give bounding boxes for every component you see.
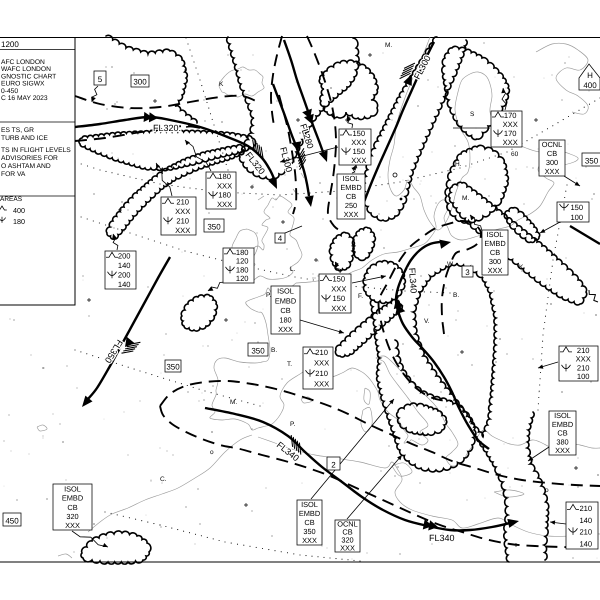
svg-text:200: 200: [118, 251, 131, 260]
svg-text:XXX: XXX: [278, 325, 293, 334]
svg-text:ISOL: ISOL: [343, 174, 360, 183]
svg-text:380: 380: [556, 437, 568, 446]
svg-text:FL350: FL350: [103, 338, 125, 365]
svg-text:140: 140: [579, 539, 592, 548]
svg-text:OCNL: OCNL: [542, 140, 563, 149]
svg-text:GNOSTIC CHART: GNOSTIC CHART: [1, 73, 56, 80]
svg-text:180: 180: [13, 217, 25, 226]
svg-text:100: 100: [570, 213, 583, 222]
svg-text:200: 200: [118, 270, 131, 279]
svg-text:XXX: XXX: [217, 200, 232, 209]
svg-text:XXX: XXX: [351, 138, 366, 147]
svg-text:XXX: XXX: [175, 226, 190, 235]
svg-text:180: 180: [218, 172, 231, 181]
svg-text:T.: T.: [287, 361, 292, 368]
svg-text:ISOL: ISOL: [277, 287, 294, 296]
svg-text:K: K: [219, 81, 224, 88]
svg-text:EMBD: EMBD: [299, 509, 320, 518]
svg-text:100: 100: [577, 372, 590, 381]
svg-text:210: 210: [579, 504, 592, 513]
svg-text:XXX: XXX: [503, 120, 518, 129]
svg-text:XXX: XXX: [344, 210, 359, 219]
svg-text:170: 170: [504, 129, 517, 138]
svg-text:B.: B.: [271, 347, 277, 354]
svg-text:FOR VA: FOR VA: [1, 171, 26, 178]
svg-text:350: 350: [166, 363, 180, 372]
svg-text:TURB AND ICE: TURB AND ICE: [1, 135, 48, 142]
svg-text:S: S: [470, 111, 475, 118]
svg-text:EMBD: EMBD: [484, 239, 505, 248]
svg-text:AFC LONDON: AFC LONDON: [1, 59, 45, 66]
svg-text:FL320.: FL320.: [153, 123, 181, 133]
svg-text:CB: CB: [280, 306, 290, 315]
svg-text:1200: 1200: [1, 40, 19, 49]
svg-text:ISOL: ISOL: [64, 484, 81, 493]
svg-text:XXX: XXX: [302, 536, 317, 545]
svg-text:o: o: [545, 487, 549, 494]
svg-text:XXX: XXX: [217, 182, 232, 191]
svg-text:ISOL: ISOL: [301, 500, 318, 509]
svg-text:FL340: FL340: [429, 533, 455, 543]
svg-text:400: 400: [583, 81, 597, 90]
svg-text:XXX: XXX: [175, 207, 190, 216]
svg-text:XXX: XXX: [545, 167, 560, 176]
svg-text:140: 140: [118, 280, 131, 289]
svg-text:180: 180: [236, 265, 249, 274]
svg-text:FL340: FL340: [407, 267, 419, 293]
svg-text:C 16 MAY 2023: C 16 MAY 2023: [1, 95, 48, 102]
svg-text:320: 320: [66, 512, 78, 521]
svg-text:180: 180: [218, 191, 231, 200]
svg-text:H: H: [587, 71, 593, 80]
svg-text:XXX: XXX: [488, 266, 503, 275]
svg-text:XXX: XXX: [331, 304, 346, 313]
svg-text:XXX: XXX: [340, 543, 355, 552]
svg-text:C.: C.: [160, 476, 167, 483]
svg-text:XXX: XXX: [331, 284, 346, 293]
svg-text:5: 5: [98, 75, 103, 84]
svg-text:ADVISORIES FOR: ADVISORIES FOR: [1, 155, 58, 162]
svg-text:210: 210: [176, 197, 189, 206]
svg-text:XXX: XXX: [65, 521, 80, 530]
svg-text:140: 140: [579, 516, 592, 525]
svg-text:o: o: [210, 449, 214, 456]
svg-text:ES TS, GR: ES TS, GR: [1, 127, 34, 134]
svg-text:150: 150: [352, 129, 365, 138]
svg-text:TS IN FLIGHT LEVELS: TS IN FLIGHT LEVELS: [1, 147, 71, 154]
svg-text:3: 3: [465, 268, 470, 277]
svg-text:V.: V.: [424, 318, 430, 325]
svg-text:CB: CB: [557, 429, 567, 438]
svg-text:180: 180: [236, 248, 249, 257]
svg-text:300: 300: [133, 78, 147, 87]
svg-text:AREAS: AREAS: [0, 196, 23, 203]
svg-text:EMBD: EMBD: [62, 494, 83, 503]
svg-text:300: 300: [546, 158, 558, 167]
svg-text:180: 180: [279, 316, 291, 325]
svg-text:CB: CB: [547, 149, 557, 158]
svg-text:210: 210: [315, 369, 328, 378]
svg-text:CB: CB: [304, 518, 314, 527]
svg-text:XXX: XXX: [503, 138, 518, 147]
svg-text:210: 210: [577, 363, 590, 372]
svg-text:L.: L.: [290, 266, 296, 273]
svg-text:EMBD: EMBD: [552, 420, 573, 429]
svg-text:ISOL: ISOL: [487, 230, 504, 239]
svg-text:140: 140: [118, 261, 131, 270]
svg-text:210: 210: [577, 346, 590, 355]
svg-text:EMBD: EMBD: [275, 296, 296, 305]
svg-text:350: 350: [251, 346, 265, 355]
svg-text:210: 210: [579, 528, 592, 537]
svg-text:EURO SIGWX: EURO SIGWX: [1, 81, 45, 88]
svg-text:O ASHTAM AND: O ASHTAM AND: [1, 163, 51, 170]
svg-text:W: W: [447, 261, 454, 268]
svg-text:150: 150: [352, 147, 365, 156]
svg-text:XXX: XXX: [314, 380, 329, 389]
svg-text:60: 60: [511, 151, 519, 158]
svg-text:CB: CB: [490, 248, 500, 257]
svg-text:K.: K.: [519, 264, 525, 271]
svg-text:ISOL: ISOL: [554, 411, 571, 420]
svg-text:M.: M.: [462, 195, 469, 202]
svg-text:250: 250: [345, 201, 357, 210]
svg-text:H.: H.: [455, 161, 462, 168]
svg-text:XXX: XXX: [351, 156, 366, 165]
svg-text:170: 170: [504, 111, 517, 120]
svg-text:2: 2: [331, 460, 336, 469]
svg-text:210: 210: [176, 216, 189, 225]
svg-text:150: 150: [332, 294, 345, 303]
svg-text:P.: P.: [266, 292, 271, 299]
svg-text:350: 350: [207, 222, 221, 231]
svg-text:M.: M.: [385, 42, 392, 49]
svg-text:150: 150: [570, 203, 583, 212]
svg-text:120: 120: [236, 257, 249, 266]
svg-text:WAFC LONDON: WAFC LONDON: [1, 66, 51, 73]
svg-text:F.: F.: [358, 293, 363, 300]
svg-text:CB: CB: [67, 503, 77, 512]
svg-text:B.: B.: [453, 292, 459, 299]
svg-text:XXX: XXX: [314, 359, 329, 368]
svg-text:XXX: XXX: [576, 355, 591, 364]
svg-text:FL320: FL320: [243, 150, 267, 176]
svg-text:XXX: XXX: [555, 446, 570, 455]
svg-text:EMBD: EMBD: [340, 183, 361, 192]
svg-text:P.: P.: [290, 421, 295, 428]
svg-text:400: 400: [13, 206, 25, 215]
svg-text:150: 150: [332, 275, 345, 284]
svg-text:M.: M.: [230, 399, 237, 406]
svg-text:300: 300: [489, 257, 501, 266]
svg-text:0-450: 0-450: [1, 88, 18, 95]
svg-text:350: 350: [303, 527, 315, 536]
svg-text:CB: CB: [346, 192, 356, 201]
svg-text:210: 210: [315, 348, 328, 357]
svg-text:350: 350: [585, 156, 599, 165]
svg-text:FL300: FL300: [278, 146, 294, 173]
svg-text:120: 120: [236, 274, 249, 283]
svg-text:4: 4: [278, 234, 283, 243]
svg-text:450: 450: [5, 516, 19, 525]
